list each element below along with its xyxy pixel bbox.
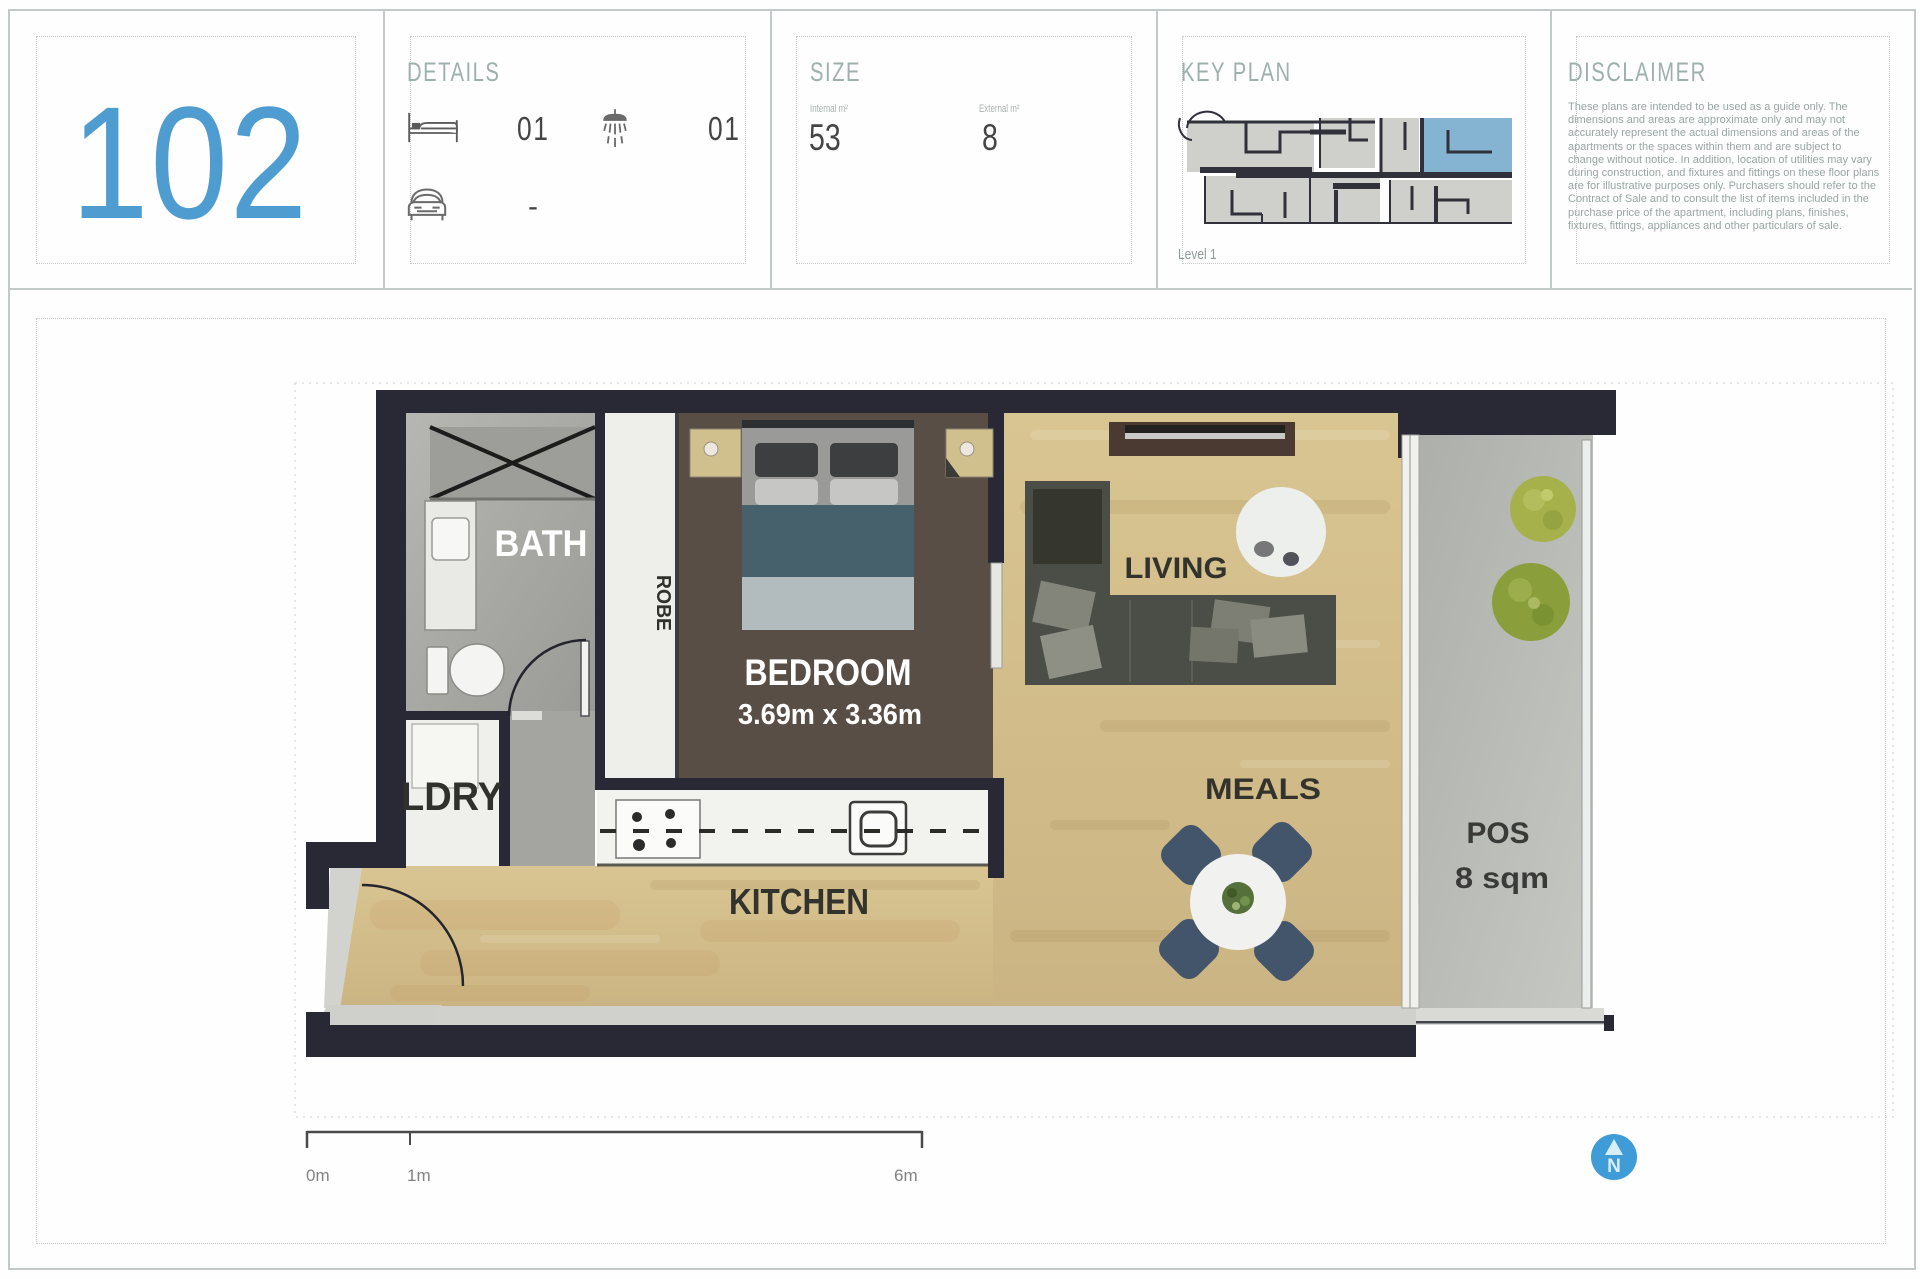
svg-text:MEALS: MEALS: [1205, 773, 1321, 806]
svg-text:6m: 6m: [894, 1166, 918, 1185]
svg-text:3.69m x 3.36m: 3.69m x 3.36m: [738, 699, 922, 731]
svg-text:0m: 0m: [306, 1166, 330, 1185]
svg-text:ROBE: ROBE: [652, 575, 674, 631]
svg-text:1m: 1m: [407, 1166, 431, 1185]
svg-text:POS: POS: [1467, 817, 1530, 850]
svg-text:LDRY: LDRY: [401, 775, 503, 819]
svg-text:BATH: BATH: [495, 523, 588, 564]
svg-text:KITCHEN: KITCHEN: [729, 881, 869, 922]
svg-text:BEDROOM: BEDROOM: [745, 652, 912, 693]
svg-text:8 sqm: 8 sqm: [1455, 862, 1549, 895]
svg-text:N: N: [1607, 1156, 1621, 1177]
svg-text:LIVING: LIVING: [1125, 552, 1228, 585]
